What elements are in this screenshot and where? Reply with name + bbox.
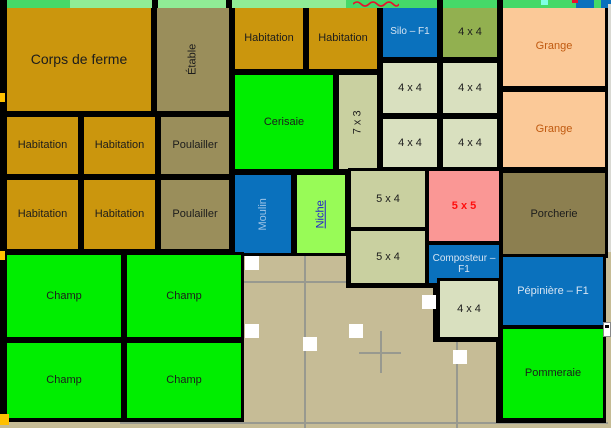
block-champ-3[interactable]: Champ [4,340,124,421]
top-strip-tick [497,0,503,8]
top-strip-cyan-mark [541,0,548,5]
block-poulailler-2[interactable]: Poulailler [158,177,232,252]
block-label: Habitation [95,139,145,152]
block-label: Poulailler [172,208,217,221]
block-porcherie[interactable]: Porcherie [500,170,608,258]
left-border-notch [0,93,5,102]
block-habitation-1[interactable]: Habitation [232,4,306,72]
top-strip-light-segment [70,0,346,8]
white-square-handle[interactable] [422,295,436,309]
top-strip-tick [152,0,158,8]
block-label: Habitation [318,32,368,45]
block-7x3[interactable]: 7 x 3 [336,72,380,172]
block-4x4-a[interactable]: 4 x 4 [380,60,440,116]
block-label: 4 x 4 [458,137,482,150]
block-label: Grange [536,40,573,53]
block-label: Habitation [95,208,145,221]
block-label: 4 x 4 [457,303,481,316]
left-border-notch [0,251,5,260]
block-label: Cerisaie [264,116,304,129]
block-pepiniere-f1[interactable]: Pépinière – F1 [500,254,606,328]
block-champ-1[interactable]: Champ [4,252,124,340]
block-grange-1[interactable]: Grange [500,4,608,89]
white-square-handle[interactable] [453,350,467,364]
block-label: Moulin [257,198,270,230]
block-label: Habitation [18,139,68,152]
block-4x4-b[interactable]: 4 x 4 [440,60,500,116]
edge-widget-button[interactable] [603,322,611,337]
white-square-handle[interactable] [245,256,259,270]
block-label: 5 x 4 [376,251,400,264]
block-label: 7 x 3 [352,110,365,134]
block-label: 4 x 4 [398,137,422,150]
white-square-handle[interactable] [349,324,363,338]
top-strip-blue-mark [576,0,594,8]
block-label: Grange [536,123,573,136]
block-champ-4[interactable]: Champ [124,340,244,421]
left-border-corner-mark [0,414,9,425]
block-label: 4 x 4 [458,82,482,95]
left-border [0,0,7,421]
block-label: 5 x 4 [376,193,400,206]
crosshair-vertical-icon [380,331,382,373]
block-habitation-5[interactable]: Habitation [4,177,81,252]
top-strip-tick [226,0,232,8]
white-square-handle[interactable] [303,337,317,351]
block-5x5[interactable]: 5 x 5 [426,168,502,244]
block-silo-f1[interactable]: Silo – F1 [380,4,440,60]
block-label: Étable [187,43,200,74]
block-4x4-olive[interactable]: 4 x 4 [440,4,500,60]
block-label: Porcherie [530,208,577,221]
block-label: 4 x 4 [398,82,422,95]
block-label: Silo – F1 [390,26,429,38]
block-label: Champ [166,290,201,303]
red-squiggle-icon [353,0,399,7]
block-champ-2[interactable]: Champ [124,252,244,340]
block-pommeraie[interactable]: Pommeraie [500,326,606,421]
block-label: Pépinière – F1 [517,285,589,298]
block-label: 4 x 4 [458,26,482,39]
block-4x4-c[interactable]: 4 x 4 [380,116,440,170]
block-etable[interactable]: Étable [154,4,232,114]
block-label: Niche [315,200,328,228]
block-4x4-d[interactable]: 4 x 4 [440,116,500,170]
block-label: Habitation [244,32,294,45]
block-5x4-b[interactable]: 5 x 4 [348,228,428,286]
block-label: Champ [46,374,81,387]
block-habitation-3[interactable]: Habitation [4,114,81,177]
block-label: Corps de ferme [31,51,127,67]
block-habitation-6[interactable]: Habitation [81,177,158,252]
edge-widget-glyph-icon [605,325,609,328]
block-habitation-4[interactable]: Habitation [81,114,158,177]
top-strip-tick [437,0,443,8]
block-grange-2[interactable]: Grange [500,89,608,170]
block-moulin[interactable]: Moulin [232,172,294,256]
block-label: Champ [166,374,201,387]
block-corps-de-ferme[interactable]: Corps de ferme [4,4,154,114]
block-cerisaie[interactable]: Cerisaie [232,72,336,172]
block-niche[interactable]: Niche [294,172,348,256]
farm-map[interactable]: Corps de fermeÉtableHabitationHabitation… [0,0,611,428]
block-label: Champ [46,290,81,303]
block-label: Habitation [18,208,68,221]
block-4x4-bottom[interactable]: 4 x 4 [437,278,501,340]
block-label: Pommeraie [525,367,581,380]
white-square-handle[interactable] [245,324,259,338]
block-label: Poulailler [172,139,217,152]
block-label: 5 x 5 [452,200,476,213]
block-label: Composteur –F1 [433,253,496,276]
block-poulailler-1[interactable]: Poulailler [158,114,232,177]
top-strip-red-dot [572,0,578,3]
block-habitation-2[interactable]: Habitation [306,4,380,72]
block-5x4-a[interactable]: 5 x 4 [348,168,428,230]
